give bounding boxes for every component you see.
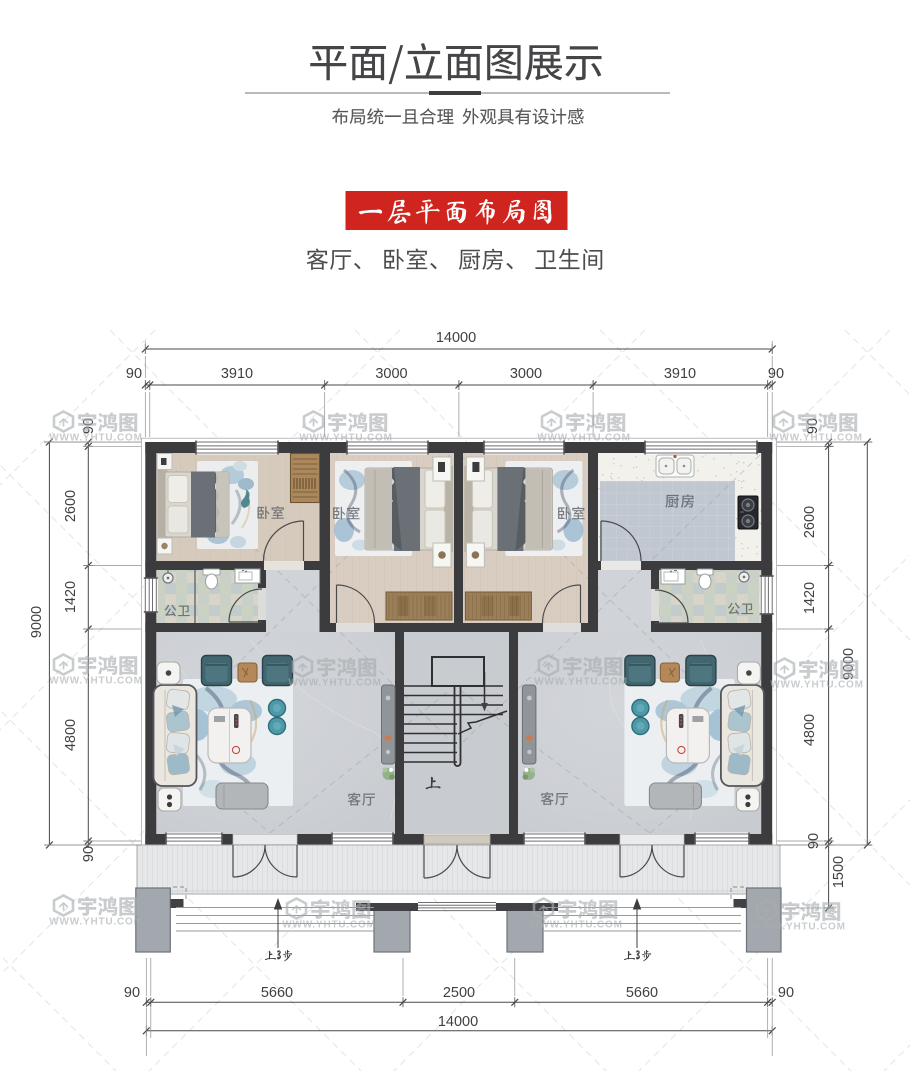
svg-text:1420: 1420 (802, 582, 818, 614)
svg-text:5660: 5660 (261, 985, 293, 1001)
svg-text:4800: 4800 (63, 719, 79, 751)
svg-text:90: 90 (124, 985, 140, 1001)
svg-text:90: 90 (768, 366, 784, 382)
svg-text:2600: 2600 (63, 490, 79, 522)
svg-text:90: 90 (126, 366, 142, 382)
svg-text:3000: 3000 (375, 366, 407, 382)
svg-text:3000: 3000 (510, 366, 542, 382)
svg-text:3910: 3910 (221, 366, 253, 382)
svg-text:4800: 4800 (802, 714, 818, 746)
svg-text:9000: 9000 (29, 606, 45, 638)
svg-text:14000: 14000 (438, 1014, 478, 1030)
svg-text:14000: 14000 (436, 330, 476, 346)
svg-text:2600: 2600 (802, 506, 818, 538)
svg-text:90: 90 (778, 985, 794, 1001)
svg-text:1420: 1420 (63, 581, 79, 613)
svg-text:2500: 2500 (443, 985, 475, 1001)
svg-text:1500: 1500 (831, 856, 847, 888)
svg-text:3910: 3910 (664, 366, 696, 382)
svg-text:90: 90 (81, 846, 97, 862)
svg-text:5660: 5660 (626, 985, 658, 1001)
svg-text:90: 90 (806, 833, 822, 849)
